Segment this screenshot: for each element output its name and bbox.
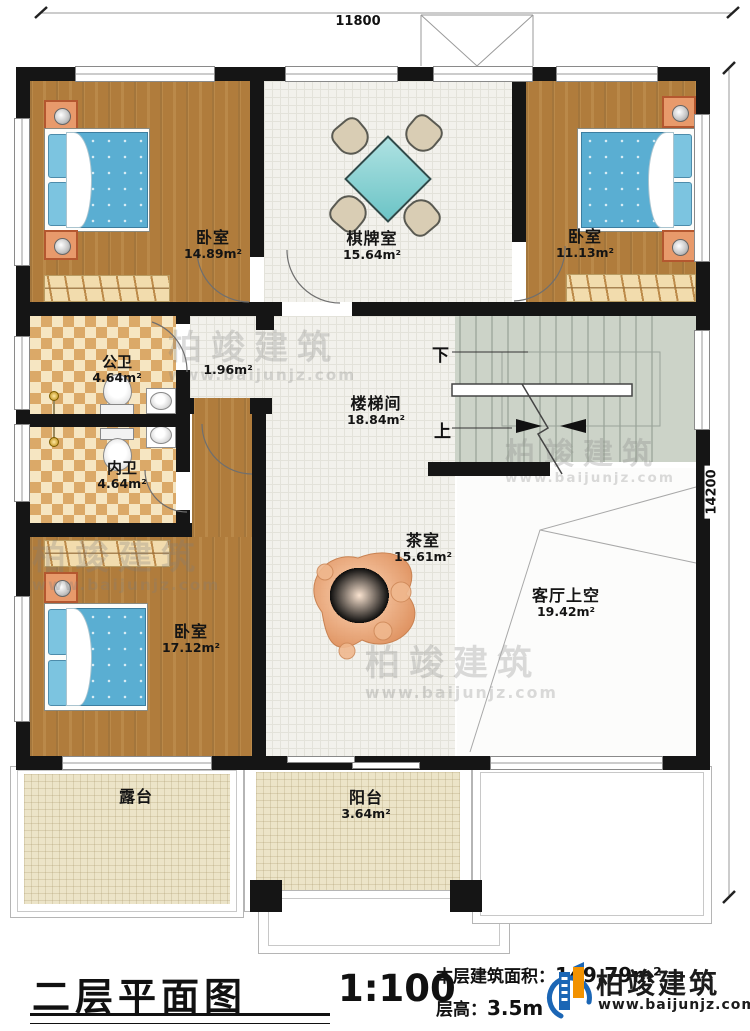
window <box>75 66 215 82</box>
room-label-terrace: 露台 <box>119 789 153 806</box>
watermark: 柏竣建筑www.baijunjz.com <box>168 330 356 384</box>
wall-divider <box>352 302 710 316</box>
room-label-bedroom-bottom-left: 卧室17.12m² <box>162 624 220 655</box>
wall-divider <box>250 67 264 257</box>
wall-stair-bottom <box>428 462 550 476</box>
wall-bedroom-top <box>16 523 192 537</box>
window <box>14 118 30 266</box>
window <box>490 756 663 770</box>
wall-bath-right <box>176 316 190 324</box>
room-label-bedroom-top-right: 卧室11.13m² <box>556 229 614 260</box>
room-label-vestibule: 1.96m² <box>203 363 252 377</box>
floor-plan-canvas: 柏竣建筑www.baijunjz.com 柏竣建筑www.baijunjz.co… <box>0 0 750 1031</box>
lamp-icon <box>672 105 689 122</box>
company-logo-icon <box>546 960 592 1022</box>
lamp-icon <box>54 238 71 255</box>
wardrobe <box>44 275 170 302</box>
sink-counter <box>146 388 176 414</box>
floor-height-value: 3.5m <box>487 996 543 1020</box>
bay-window-outline <box>421 15 533 66</box>
stair-up-label: 上 <box>434 417 451 442</box>
bed-blanket <box>648 132 674 228</box>
sink-icon <box>150 426 172 444</box>
company-url: www.baijunjz.com <box>598 997 750 1013</box>
nightstand <box>44 230 78 260</box>
room-label-balcony: 阳台3.64m² <box>341 790 390 821</box>
nightstand <box>662 96 696 128</box>
bed-pillow <box>48 660 68 706</box>
room-label-tea-room: 茶室15.61m² <box>394 533 452 564</box>
window <box>285 66 398 82</box>
balcony-sliding-door <box>287 756 355 763</box>
dimension-line-right <box>723 62 735 903</box>
room-label-stairwell: 楼梯间18.84m² <box>347 396 405 427</box>
bed-pillow <box>48 182 68 226</box>
bed-pillow <box>672 182 692 226</box>
room-label-private-bathroom: 内卫4.64m² <box>97 461 146 491</box>
balcony-column <box>250 880 282 912</box>
lamp-icon <box>672 239 689 256</box>
plan-title-underline <box>30 1013 330 1024</box>
room-label-public-bathroom: 公卫4.64m² <box>92 355 141 385</box>
balcony-column <box>450 880 482 912</box>
dimension-right-height: 14200 <box>705 465 720 518</box>
floor-height-label: 层高： <box>436 1000 487 1020</box>
wall-stub <box>256 316 274 330</box>
terrace-door <box>62 756 212 770</box>
watermark: 柏竣建筑www.baijunjz.com <box>32 540 220 594</box>
nightstand <box>44 100 78 130</box>
corridor-floor <box>192 398 252 537</box>
bed-pillow <box>48 134 68 178</box>
room-label-game-room: 棋牌室15.64m² <box>343 231 401 262</box>
wall-bath-divider <box>16 414 190 427</box>
window <box>694 114 710 262</box>
bed-pillow <box>672 134 692 178</box>
balcony-sliding-door <box>352 762 420 769</box>
window <box>14 596 30 722</box>
sink-icon <box>150 392 172 410</box>
lamp-icon <box>54 108 71 125</box>
bay-window <box>433 66 533 82</box>
towel-knob-icon <box>49 391 59 401</box>
stair-down-label: 下 <box>432 341 449 366</box>
floor-area-label: 本层建筑面积： <box>436 967 555 987</box>
window <box>694 330 710 430</box>
towel-knob-icon <box>49 437 59 447</box>
bed-pillow <box>48 609 68 655</box>
room-label-bedroom-top-left: 卧室14.89m² <box>184 230 242 261</box>
wardrobe <box>566 274 696 302</box>
wall-divider <box>16 302 282 316</box>
nightstand <box>662 230 696 262</box>
company-name: 柏竣建筑 <box>596 962 720 1002</box>
lower-roof-outline-inner <box>480 772 704 916</box>
wall-stub <box>176 398 194 414</box>
wall-tea-room-left <box>252 404 266 756</box>
watermark: 柏竣建筑www.baijunjz.com <box>365 645 558 701</box>
dimension-top-width: 11800 <box>331 14 384 29</box>
dimension-line-top <box>35 7 739 18</box>
room-label-living-void: 客厅上空19.42m² <box>532 588 600 619</box>
floor-height-row: 层高：3.5m <box>436 995 543 1020</box>
window <box>14 336 30 410</box>
wall-divider <box>512 67 526 242</box>
window <box>14 424 30 502</box>
window <box>556 66 658 82</box>
